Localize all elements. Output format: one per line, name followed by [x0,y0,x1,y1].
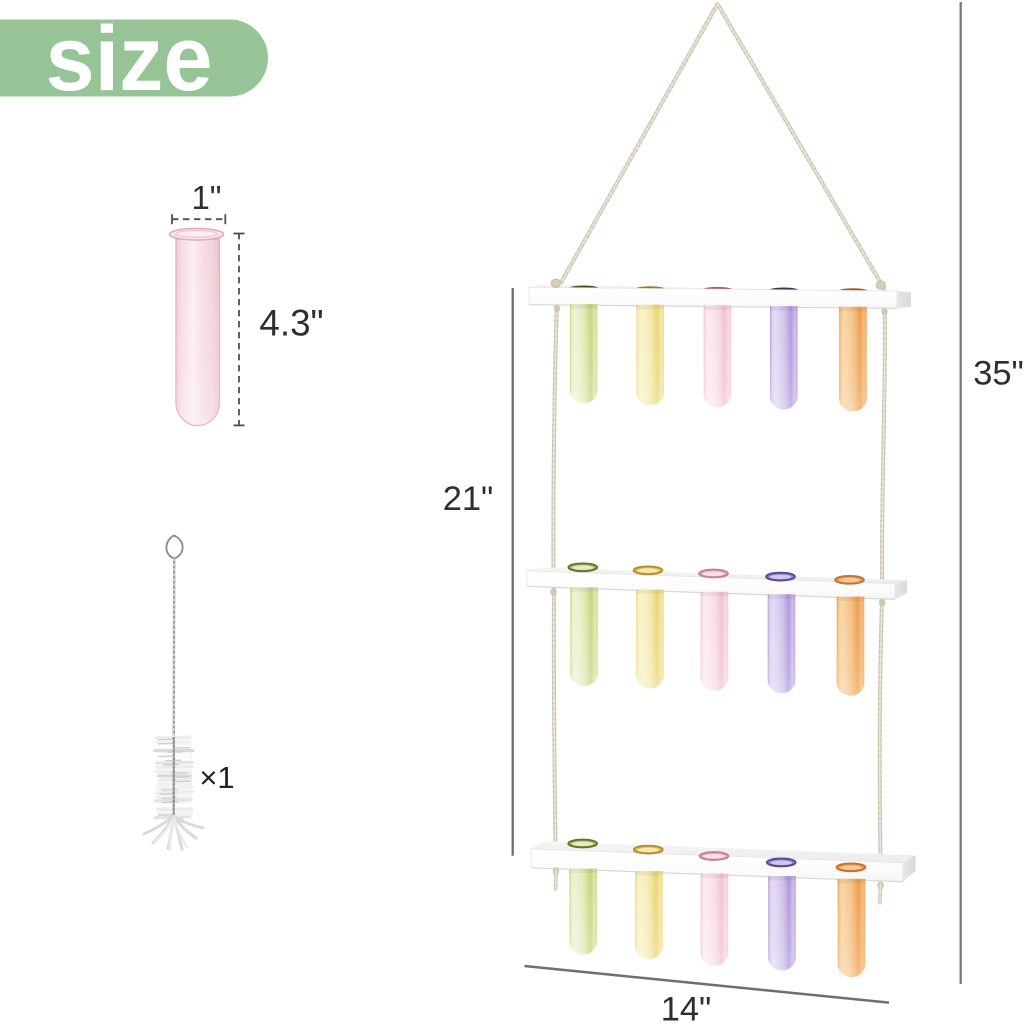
svg-text:35": 35" [973,355,1024,393]
svg-text:14": 14" [661,991,712,1025]
svg-text:size: size [46,8,213,110]
svg-text:21": 21" [443,480,494,518]
svg-text:1": 1" [191,179,221,216]
svg-text:×1: ×1 [199,760,234,795]
svg-text:4.3": 4.3" [259,302,323,343]
